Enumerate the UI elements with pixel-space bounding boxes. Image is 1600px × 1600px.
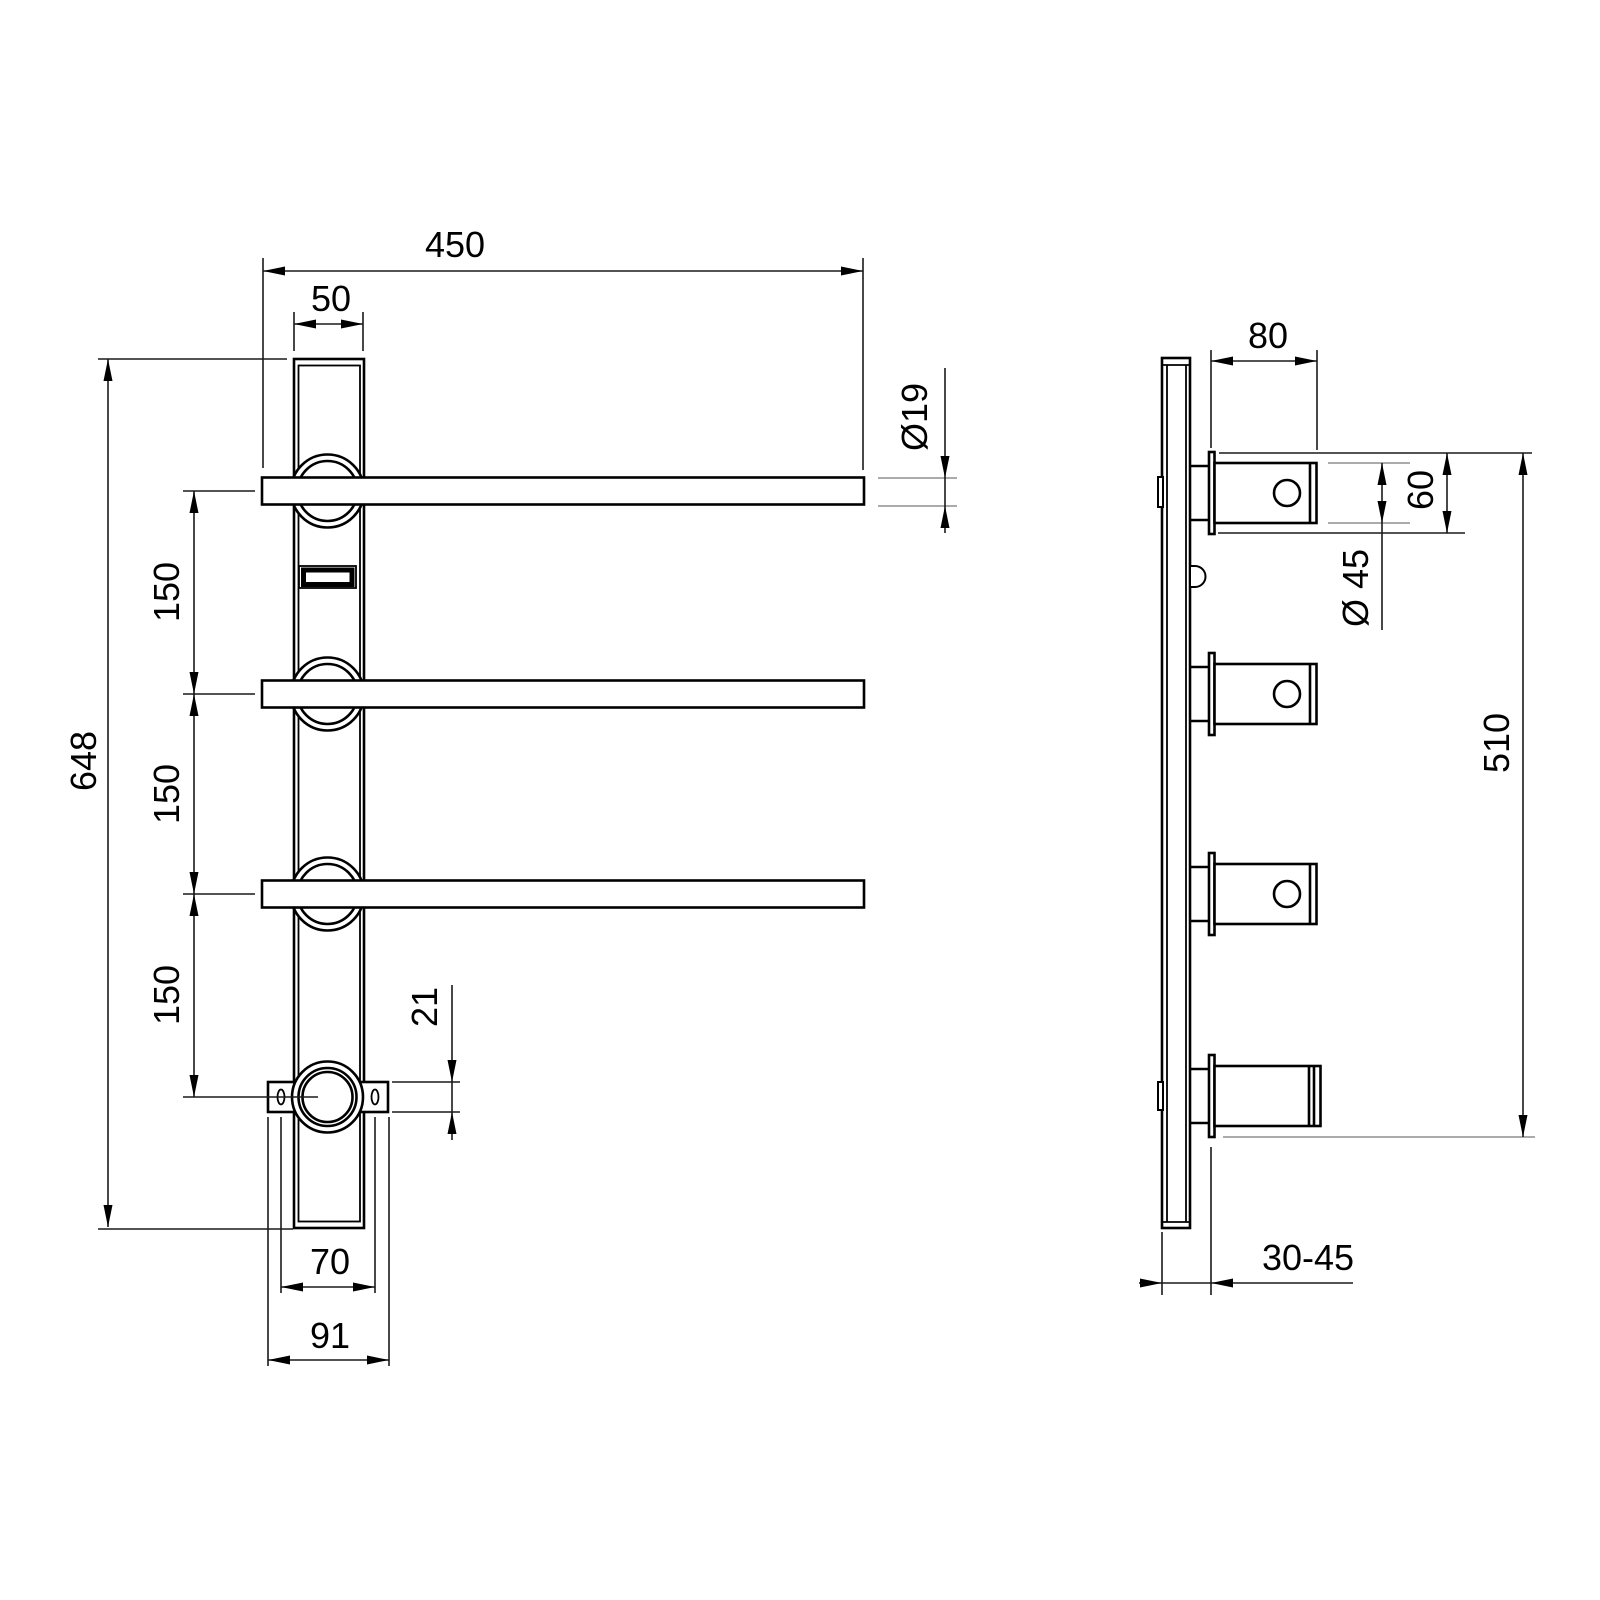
background <box>0 0 1600 1600</box>
dim-dia45-label: Ø 45 <box>1335 549 1376 627</box>
technical-drawing: 450 50 Ø19 648 <box>0 0 1600 1600</box>
dim-150-top-label: 150 <box>146 562 187 622</box>
towel-rail-bar <box>262 881 864 908</box>
dim-70-label: 70 <box>310 1241 350 1282</box>
slot-window <box>299 566 356 588</box>
rear-flange-edge <box>1158 1082 1163 1110</box>
rear-tab-top <box>1158 477 1163 507</box>
side-arm-4 <box>1190 1055 1321 1137</box>
set-screw-hole <box>1274 881 1300 907</box>
drawing-svg: 450 50 Ø19 648 <box>0 0 1600 1600</box>
dim-30-45-label: 30-45 <box>1262 1237 1354 1278</box>
dim-150-bottom-label: 150 <box>146 965 187 1025</box>
front-knob <box>1190 566 1206 587</box>
side-arm-3 <box>1190 853 1317 935</box>
side-arm-1 <box>1190 452 1317 534</box>
towel-rail-bar <box>262 478 864 505</box>
dim-510-label: 510 <box>1476 713 1517 773</box>
dim-91-label: 91 <box>310 1315 350 1356</box>
dim-450-label: 450 <box>425 224 485 265</box>
dim-60-label: 60 <box>1400 470 1441 510</box>
set-screw-hole <box>1274 681 1300 707</box>
dim-dia19-label: Ø19 <box>894 383 935 451</box>
dim-80-label: 80 <box>1248 315 1288 356</box>
side-arm-2 <box>1190 653 1317 735</box>
valve-body <box>1215 1066 1321 1126</box>
set-screw-hole <box>1274 480 1300 506</box>
dim-50-label: 50 <box>311 278 351 319</box>
dim-648-label: 648 <box>63 731 104 791</box>
dim-21-label: 21 <box>404 987 445 1027</box>
dim-150-middle-label: 150 <box>146 764 187 824</box>
towel-rail-bar <box>262 681 864 708</box>
